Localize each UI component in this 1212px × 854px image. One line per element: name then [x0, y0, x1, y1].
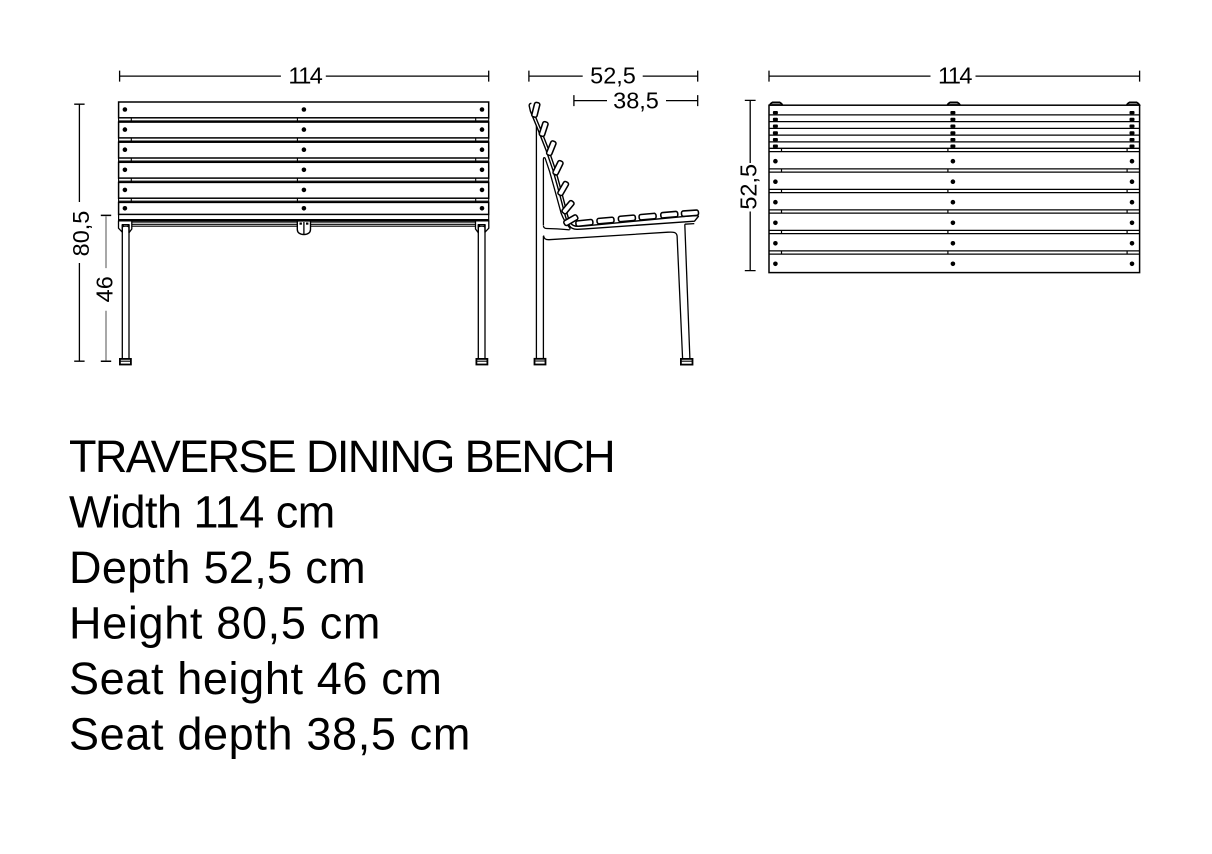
svg-text:Height 80,5 cm: Height 80,5 cm	[69, 598, 381, 649]
svg-text:Seat depth 38,5 cm: Seat depth 38,5 cm	[69, 709, 471, 760]
svg-text:38,5: 38,5	[613, 87, 659, 113]
svg-text:Width 114 cm: Width 114 cm	[69, 487, 335, 538]
svg-text:Seat height 46 cm: Seat height 46 cm	[69, 653, 442, 704]
svg-text:52,5: 52,5	[736, 164, 762, 210]
svg-text:46: 46	[91, 276, 117, 302]
svg-text:114: 114	[938, 62, 972, 88]
svg-text:114: 114	[288, 62, 322, 88]
svg-text:52,5: 52,5	[590, 62, 636, 88]
svg-text:80,5: 80,5	[68, 211, 94, 257]
svg-text:Depth 52,5 cm: Depth 52,5 cm	[69, 542, 366, 593]
svg-text:TRAVERSE DINING BENCH: TRAVERSE DINING BENCH	[69, 431, 614, 482]
